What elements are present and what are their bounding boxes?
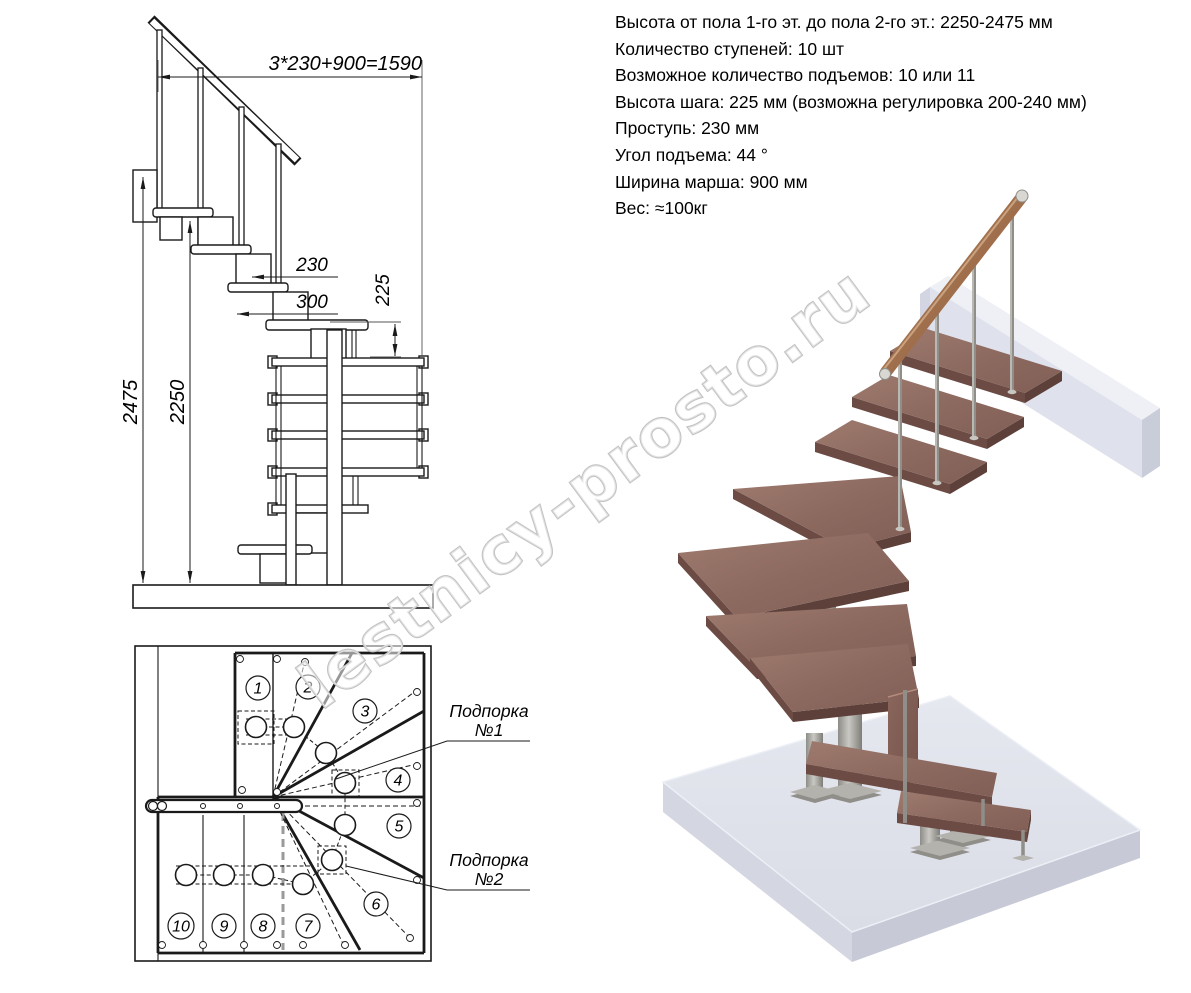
dim-run: 3*230+900=1590 — [269, 53, 423, 75]
spec-line: Количество ступеней: 10 шт — [615, 36, 1175, 63]
step-number-4: 4 — [394, 773, 403, 790]
page: 3*230+900=1590 230 300 225 2475 2250 — [0, 0, 1191, 993]
support2-label-line2: №2 — [475, 869, 504, 889]
elevation-column-2 — [286, 474, 296, 585]
step-number-7: 7 — [304, 919, 314, 936]
step-number-6: 6 — [372, 897, 381, 914]
spec-line: Ширина марша: 900 мм — [615, 169, 1175, 196]
dim-tread: 230 — [295, 255, 328, 276]
step-number-3: 3 — [361, 704, 370, 721]
plan-handrail — [146, 800, 302, 812]
spec-line: Угол подъема: 44 ° — [615, 142, 1175, 169]
spec-line: Вес: ≈100кг — [615, 195, 1175, 222]
spec-line: Высота от пола 1-го эт. до пола 2-го эт.… — [615, 9, 1175, 36]
step-number-1: 1 — [254, 681, 263, 698]
spec-line: Проступь: 230 мм — [615, 115, 1175, 142]
support1-label-line2: №1 — [475, 720, 504, 740]
dim-total-height: 2475 — [120, 379, 142, 425]
step-number-5: 5 — [395, 819, 404, 836]
dim-module: 300 — [296, 292, 328, 313]
spec-line: Высота шага: 225 мм (возможна регулировк… — [615, 89, 1175, 116]
elevation-column — [327, 330, 342, 585]
support1-label-line1: Подпорка — [449, 701, 528, 721]
step-number-9: 9 — [220, 919, 229, 936]
support2-label-line1: Подпорка — [449, 850, 528, 870]
step-number-8: 8 — [259, 919, 268, 936]
spec-text-block: Высота от пола 1-го эт. до пола 2-го эт.… — [615, 9, 1175, 222]
spec-line: Возможное количество подъемов: 10 или 11 — [615, 62, 1175, 89]
elevation-drawing: 3*230+900=1590 230 300 225 2475 2250 — [120, 19, 433, 608]
step-number-10: 10 — [172, 919, 190, 936]
render-3d — [663, 190, 1160, 962]
dim-floor-height: 2250 — [167, 380, 189, 426]
dim-rise: 225 — [373, 274, 394, 307]
